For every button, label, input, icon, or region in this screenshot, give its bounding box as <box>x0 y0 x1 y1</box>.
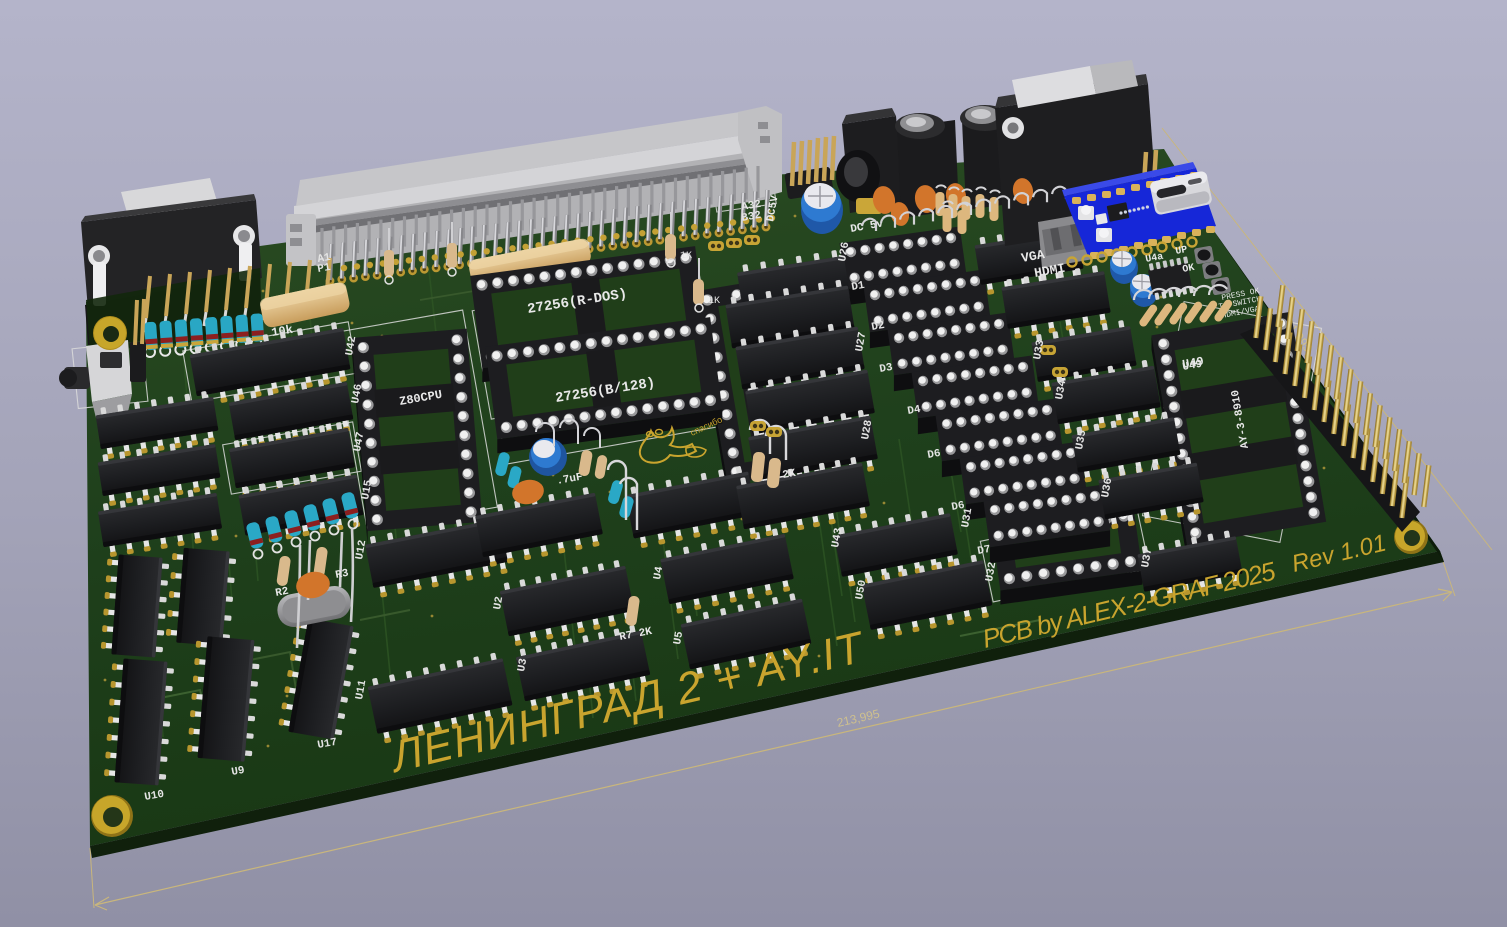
svg-text:R2: R2 <box>274 586 289 600</box>
svg-text:UP: UP <box>1175 245 1189 258</box>
svg-text:D6: D6 <box>927 448 942 462</box>
svg-text:D4: D4 <box>907 404 922 418</box>
svg-text:D7: D7 <box>977 544 992 558</box>
svg-text:U9: U9 <box>231 765 246 779</box>
svg-text:U5: U5 <box>672 630 686 645</box>
svg-text:OK: OK <box>1182 263 1196 276</box>
svg-text:D3: D3 <box>879 362 894 376</box>
svg-text:1K: 1K <box>680 251 692 262</box>
svg-text:R3: R3 <box>334 568 350 582</box>
svg-text:U3: U3 <box>516 657 530 672</box>
svg-text:P1: P1 <box>317 262 332 276</box>
svg-text:1K: 1K <box>708 296 720 307</box>
svg-text:D1: D1 <box>851 280 866 294</box>
svg-text:U2: U2 <box>492 596 506 611</box>
svg-text:2K: 2K <box>782 468 797 482</box>
svg-text:U4: U4 <box>652 565 666 580</box>
svg-text:D2: D2 <box>871 320 886 334</box>
